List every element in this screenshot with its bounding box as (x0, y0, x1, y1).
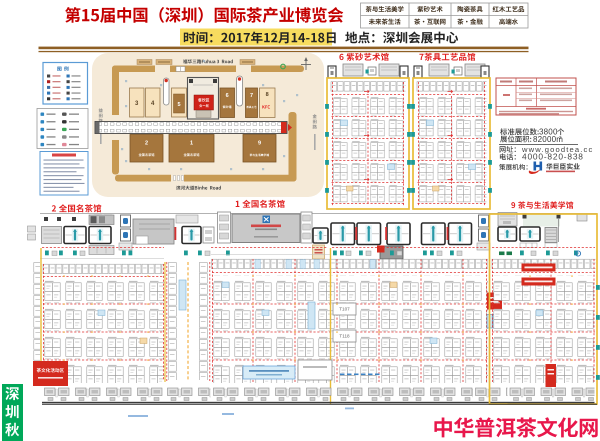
svg-text:8: 8 (266, 92, 269, 98)
svg-text:1: 1 (190, 141, 193, 147)
svg-text:2: 2 (145, 141, 148, 147)
svg-text:4000-820-838: 4000-820-838 (522, 152, 584, 162)
svg-text:6: 6 (226, 93, 229, 99)
svg-text:7: 7 (250, 93, 253, 99)
svg-text:T118: T118 (339, 334, 350, 339)
svg-text:T107: T107 (339, 307, 350, 312)
svg-text:5: 5 (177, 102, 180, 108)
svg-text:9: 9 (258, 141, 261, 147)
